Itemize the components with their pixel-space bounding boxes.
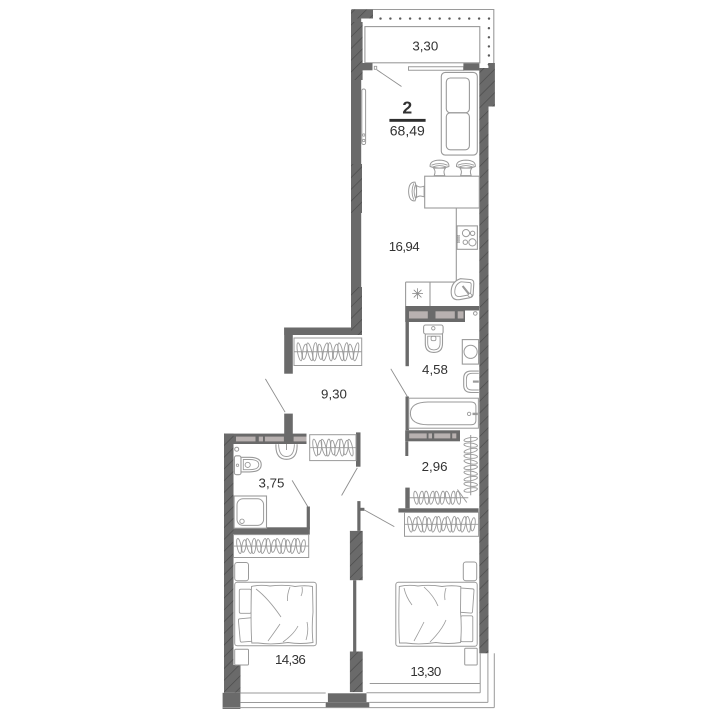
svg-text:9,30: 9,30 — [321, 387, 347, 402]
svg-text:2: 2 — [402, 97, 412, 117]
svg-text:68,49: 68,49 — [390, 123, 425, 139]
svg-text:3,75: 3,75 — [259, 475, 285, 490]
svg-text:14,36: 14,36 — [275, 652, 305, 667]
svg-text:4,58: 4,58 — [422, 362, 448, 377]
svg-text:16,94: 16,94 — [389, 239, 419, 254]
svg-text:3,30: 3,30 — [412, 38, 438, 53]
svg-text:13,30: 13,30 — [410, 664, 440, 679]
svg-text:2,96: 2,96 — [422, 459, 448, 474]
